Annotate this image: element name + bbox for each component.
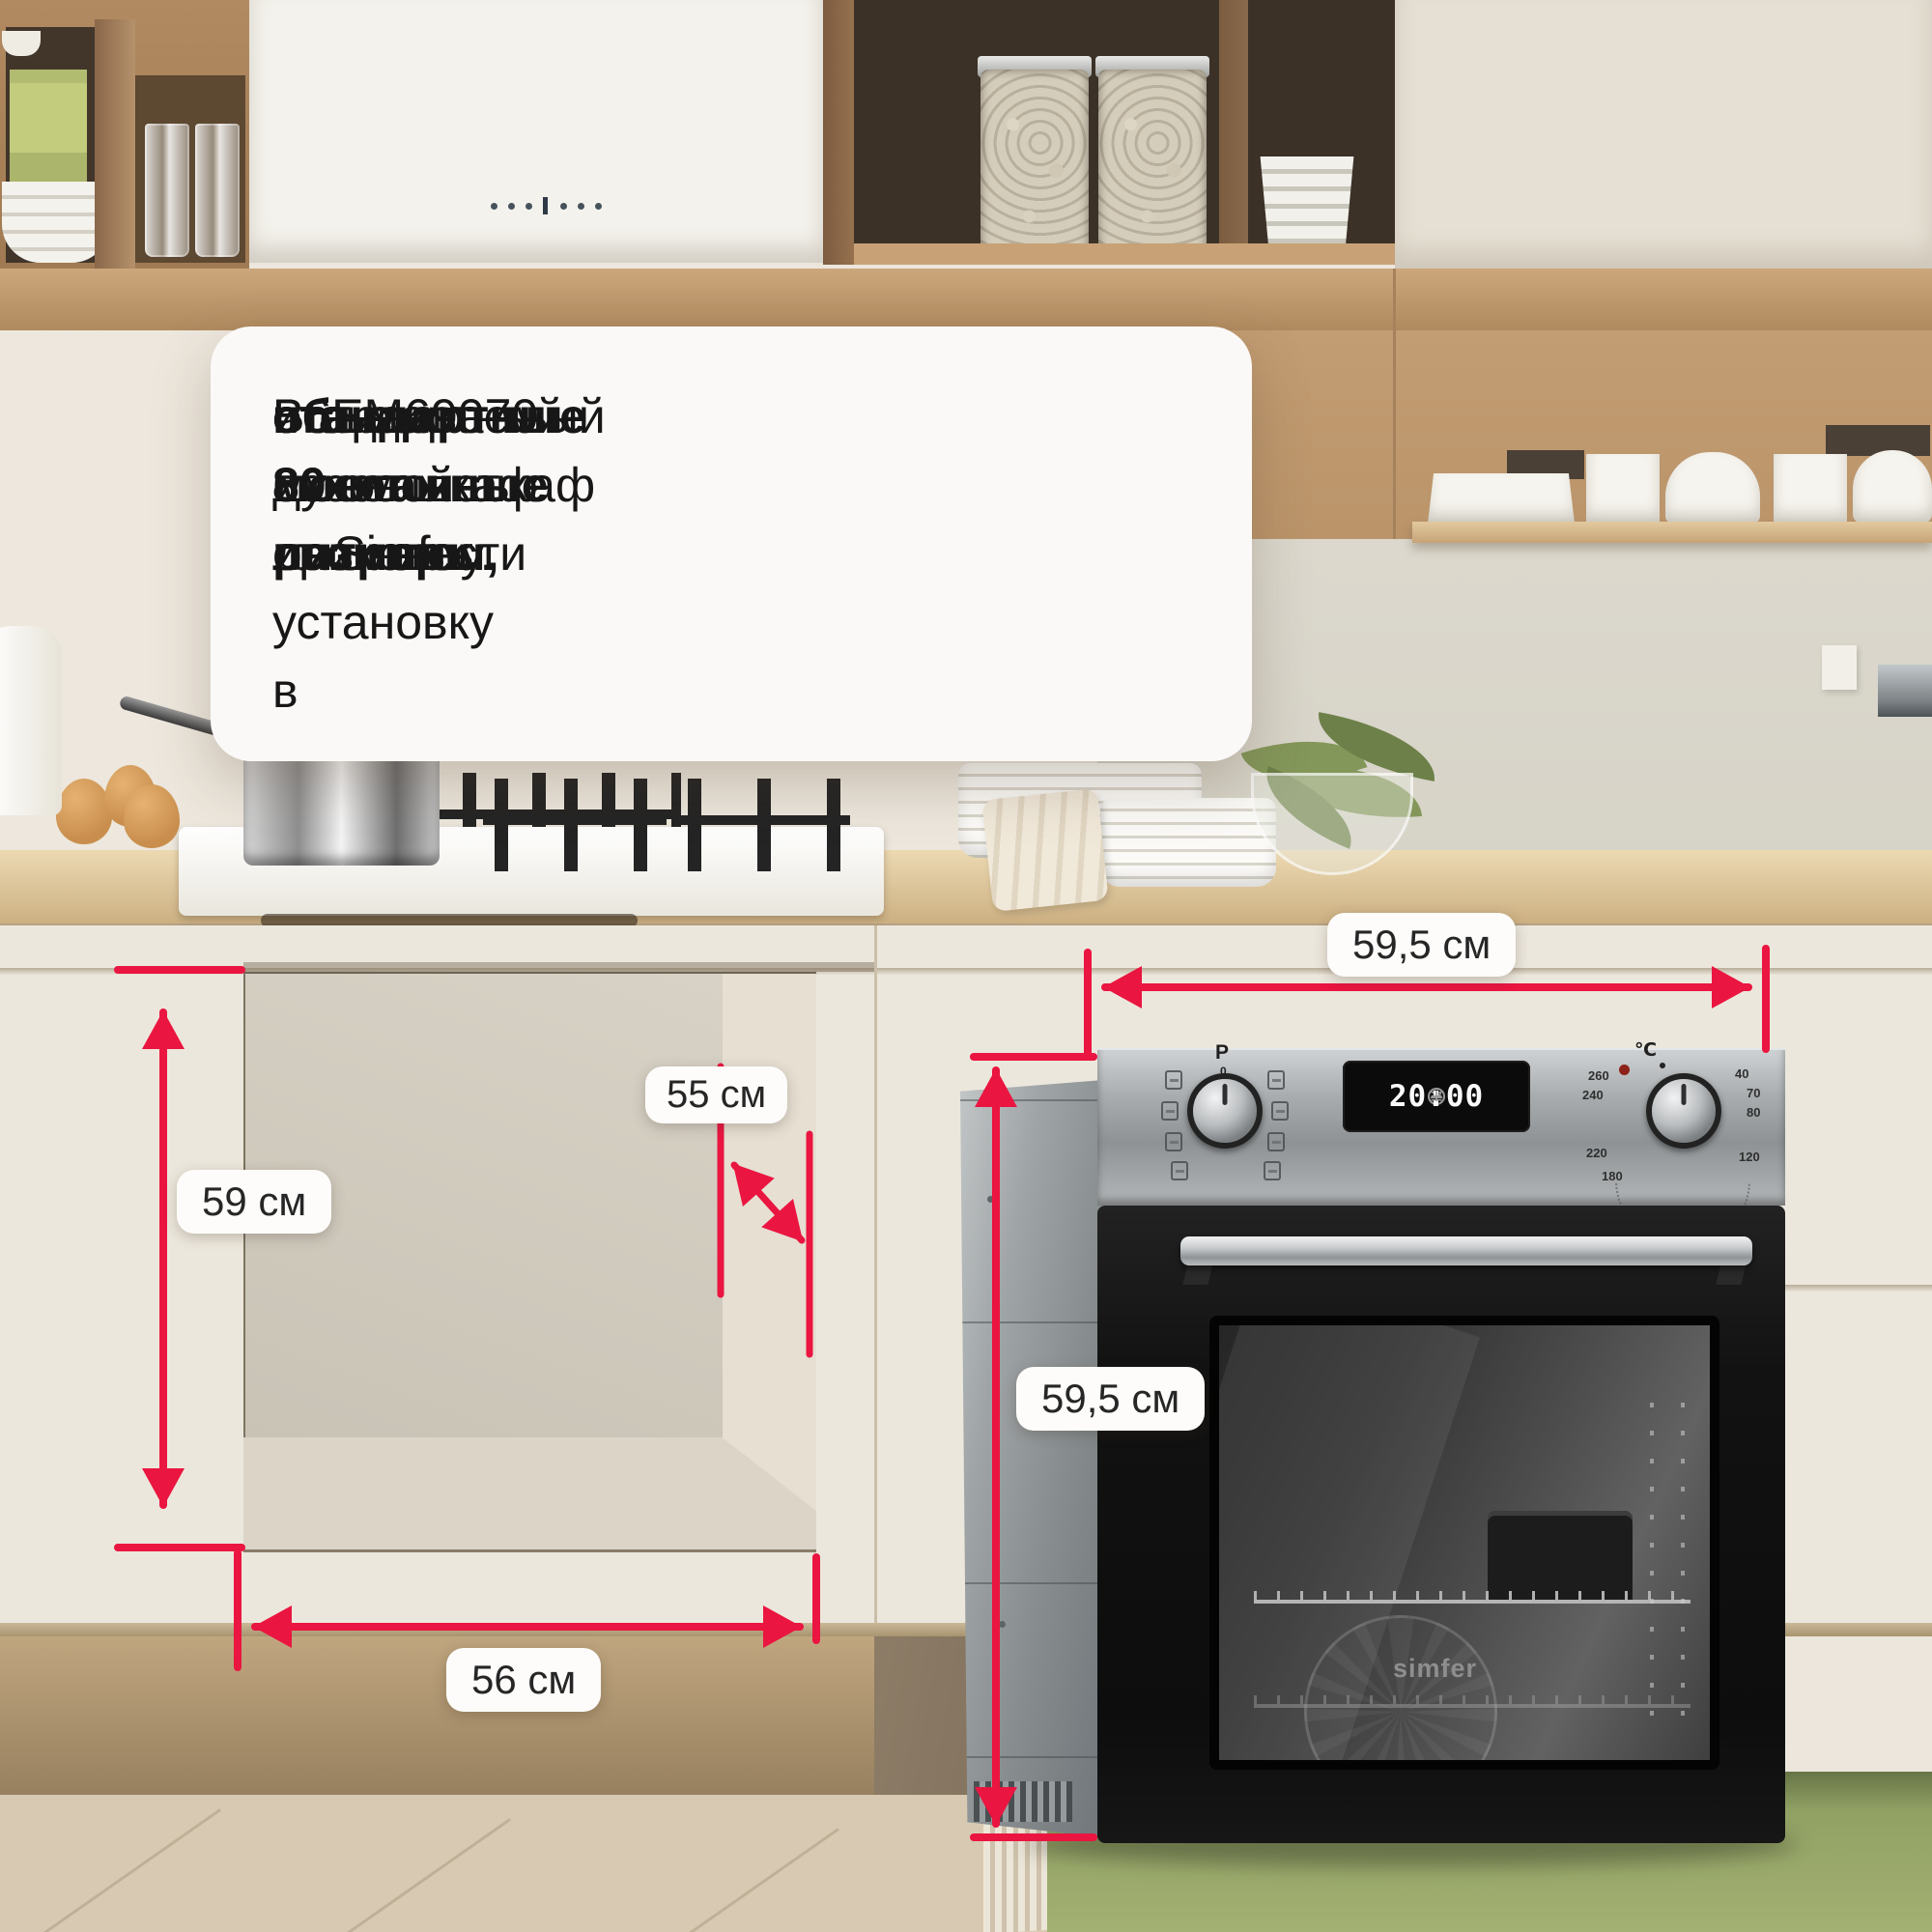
- left-shelf-unit: [0, 0, 249, 270]
- temp-label: 70: [1747, 1086, 1760, 1100]
- hob-grate: [676, 779, 850, 871]
- tile-floor: [0, 1795, 1048, 1932]
- shelf-board: [854, 243, 1395, 265]
- tile-seam: [303, 1818, 511, 1932]
- temp-label: 180: [1602, 1169, 1623, 1183]
- cabinet-seam: [874, 925, 877, 1633]
- hood-control-dot: [595, 203, 602, 210]
- square-bowl-stack: [1254, 156, 1360, 249]
- oven-function-icon: [1271, 1101, 1289, 1121]
- temp-label: 80: [1747, 1105, 1760, 1120]
- white-box: [1586, 454, 1660, 524]
- wood-divider: [95, 19, 135, 269]
- drinking-glass: [195, 124, 240, 257]
- dimension-label-oven-width: 59,5 см: [1327, 913, 1516, 977]
- oven-rack: [1254, 1600, 1690, 1604]
- hood-control-dot: [508, 203, 515, 210]
- green-book: [10, 70, 87, 182]
- program-knob-label: P: [1215, 1041, 1229, 1065]
- pot-silhouette: [1488, 1511, 1633, 1604]
- serving-dish: [1428, 473, 1575, 524]
- hood-control-dot: [578, 203, 584, 210]
- oven-indicator-light: [1619, 1065, 1630, 1075]
- cabinet-groove: [1785, 1285, 1932, 1292]
- white-box: [1774, 454, 1847, 524]
- product-infographic: P 0 ≡ 20:00 – + ℃ 40 70 80 120 180 220 2…: [0, 0, 1932, 1932]
- niche-side-wall: [723, 972, 816, 1513]
- range-hood: [249, 0, 823, 263]
- temp-label: 120: [1739, 1150, 1760, 1164]
- drinking-glass: [145, 124, 189, 257]
- description-text: стандартный 60 см шкаф или нишу.: [272, 383, 563, 588]
- oven-vent-slots: [974, 1781, 1072, 1822]
- oven-function-icon: [1171, 1161, 1188, 1180]
- oven-side-panel: [960, 1080, 1103, 1837]
- dimension-label-niche-height: 59 см: [177, 1170, 331, 1234]
- niche-top-shadow: [243, 962, 874, 972]
- rack-rail: [1681, 1403, 1685, 1721]
- storage-jar: [1098, 70, 1207, 253]
- hood-control-dot: [491, 203, 497, 210]
- oven-function-icon: [1161, 1101, 1179, 1121]
- hood-control-dot: [560, 203, 567, 210]
- brand-logo: simfer: [1393, 1654, 1477, 1684]
- oven-temperature-knob: [1646, 1073, 1721, 1149]
- description-card: Встраиваемый духовой шкаф от Simfer B6EM…: [211, 327, 1252, 761]
- wood-divider: [1219, 0, 1248, 245]
- oven-function-icon: [1165, 1070, 1182, 1090]
- temp-label: 40: [1735, 1066, 1748, 1081]
- oven-display: ≡ 20:00 – +: [1343, 1061, 1530, 1132]
- wall-faucet: [1878, 665, 1932, 717]
- tile-seam: [14, 1808, 221, 1932]
- knob-marker-dot: [1660, 1063, 1665, 1068]
- oven-handle: [1180, 1236, 1752, 1265]
- hood-control-dot: [526, 203, 532, 210]
- wood-trim: [0, 269, 1932, 330]
- panel-seam: [1393, 269, 1396, 539]
- oven-function-icon: [1165, 1132, 1182, 1151]
- rack-rail: [1650, 1403, 1654, 1721]
- upper-cabinet: [1395, 0, 1932, 269]
- wall-switch-plate: [1822, 645, 1857, 690]
- temp-label: 240: [1582, 1088, 1604, 1102]
- oven-function-icon: [1264, 1161, 1281, 1180]
- oven-program-knob: [1187, 1073, 1263, 1149]
- storage-jar: [980, 70, 1089, 253]
- small-dish: [2, 31, 41, 56]
- dimension-label-oven-height: 59,5 см: [1016, 1367, 1205, 1431]
- floating-shelf: [1412, 522, 1932, 543]
- oven-window: [1209, 1316, 1719, 1770]
- dimension-label-niche-depth: 55 см: [645, 1066, 787, 1123]
- niche-floor: [243, 1437, 816, 1552]
- wood-divider: [823, 0, 854, 265]
- pitcher: [0, 626, 62, 815]
- hob-grate: [483, 779, 667, 871]
- oven-function-icon: [1267, 1070, 1285, 1090]
- bowl: [1853, 450, 1932, 524]
- plate-stack: [1100, 798, 1276, 887]
- oven-function-icon: [1267, 1132, 1285, 1151]
- tile-seam: [632, 1828, 839, 1932]
- hood-control-bar: [543, 197, 548, 214]
- dimension-label-niche-width: 56 см: [446, 1648, 601, 1712]
- oven-rack: [1254, 1704, 1690, 1708]
- display-plus: +: [1431, 1086, 1443, 1107]
- kitchen-towel: [981, 788, 1108, 912]
- temperature-knob-label: ℃: [1634, 1039, 1657, 1062]
- temp-label: 220: [1586, 1146, 1607, 1160]
- temp-label: 260: [1588, 1068, 1609, 1083]
